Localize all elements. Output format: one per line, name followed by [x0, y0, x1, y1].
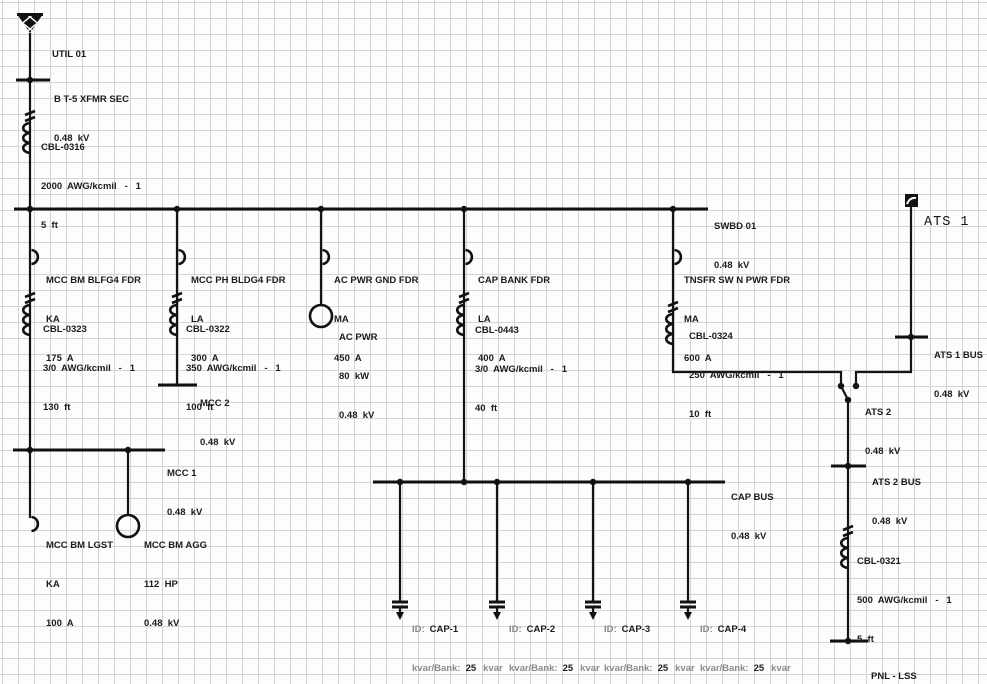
oneline-diagram-canvas: UTIL 01 B T-5 XFMR SEC 0.48 kV CBL-0316 …	[0, 0, 987, 684]
cable-label-cbl0443: CBL-0443 3/0 AWG/kcmil - 1 40 ft	[475, 298, 567, 441]
bus-label-pnl-lss: PNL - LSS 0.208 kV	[871, 644, 917, 684]
breaker-ac-pwr-gnd-icon[interactable]	[323, 250, 329, 264]
cable-label-cbl0316: CBL-0316 2000 AWG/kcmil - 1 5 ft	[41, 115, 141, 258]
breaker-mcc-bm-blfg4-icon[interactable]	[32, 250, 38, 264]
breaker-mcc-bm-lgst-icon[interactable]	[32, 517, 38, 531]
ats1-label: ATS 1	[924, 190, 970, 255]
breaker-tnsfr-sw-icon[interactable]	[675, 250, 681, 264]
utility-source-icon[interactable]	[14, 12, 46, 34]
cable-label-cbl0324: CBL-0324 250 AWG/kcmil - 1 10 ft	[689, 304, 784, 447]
breaker-label-mcc-bm-lgst: MCC BM LGST KA 100 A	[46, 513, 113, 656]
bus-label-mcc2: MCC 2 0.48 kV	[200, 371, 235, 475]
conductor-cap-drops[interactable]	[400, 482, 688, 601]
load-ac-pwr-icon[interactable]	[310, 305, 332, 327]
cap-label-cap2: ID:CAP-2 kvar/Bank:25kvar	[509, 597, 600, 684]
cable-label-cbl0323: CBL-0323 3/0 AWG/kcmil - 1 130 ft	[43, 297, 135, 440]
load-label-mcc-bm-agg: MCC BM AGG 112 HP 0.48 kV	[144, 513, 207, 656]
load-mcc-bm-agg-icon[interactable]	[117, 515, 139, 537]
capacitor-cap1-icon[interactable]	[392, 602, 408, 620]
bus-label-cap-bus: CAP BUS 0.48 kV	[731, 465, 774, 569]
cap-label-cap1: ID:CAP-1 kvar/Bank:25kvar	[412, 597, 503, 684]
ats2-switch-icon[interactable]	[838, 383, 859, 403]
conductor-ats1-drop[interactable]	[856, 207, 911, 384]
cap-label-cap4: ID:CAP-4 kvar/Bank:25kvar	[700, 597, 791, 684]
cap-label-cap3: ID:CAP-3 kvar/Bank:25kvar	[604, 597, 695, 684]
load-label-ac-pwr: AC PWR 80 kW 0.48 kV	[339, 305, 378, 448]
ats1-icon[interactable]	[905, 194, 918, 207]
breaker-cap-bank-fdr-icon[interactable]	[466, 250, 472, 264]
bus-label-ats1-bus: ATS 1 BUS 0.48 kV	[934, 323, 983, 427]
breaker-mcc-ph-bldg4-icon[interactable]	[179, 250, 185, 264]
